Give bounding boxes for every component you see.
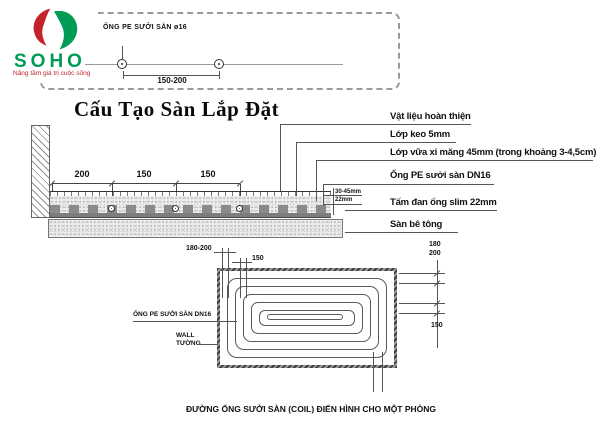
label-finish-material: Vật liệu hoàn thiện <box>390 112 471 122</box>
section-dim-150b: 150 <box>193 170 223 179</box>
room-wall-outline <box>217 268 397 368</box>
leader-line <box>345 210 497 211</box>
plan-dim-line <box>214 252 236 253</box>
coil-inner-end <box>267 314 343 320</box>
logo: SOHO Nâng tầm giá trị cuộc sống <box>10 2 98 80</box>
leader-line <box>345 232 458 233</box>
thickness-line <box>324 195 362 196</box>
plan-dim-right-150: 150 <box>431 322 443 330</box>
plan-dim-leader <box>399 273 445 274</box>
dim-end-tick <box>219 71 220 79</box>
section-dim-200: 200 <box>67 170 97 179</box>
plan-pipe-leader <box>133 321 237 322</box>
section-dim-150a: 150 <box>129 170 159 179</box>
thickness-22: 22mm <box>335 197 352 203</box>
section-pipe <box>236 205 243 212</box>
plan-dim-180-200: 180-200 <box>186 245 212 253</box>
label-pe-pipe: Ống PE sưởi sàn DN16 <box>390 171 490 181</box>
wall-section-hatch <box>31 125 50 218</box>
leader-line <box>316 160 317 201</box>
plan-dim-line <box>232 262 252 263</box>
soho-brand-text: SOHO <box>14 52 86 71</box>
plan-pipe-label: ỐNG PE SƯỞI SÀN DN16 <box>133 311 211 318</box>
panel-teeth-pattern <box>50 205 331 213</box>
leader-line <box>280 124 281 191</box>
label-panel-slim: Tấm đan ống slim 22mm <box>390 198 497 208</box>
leader-line <box>296 142 456 143</box>
coil-supply-pipe <box>373 352 374 392</box>
plan-dim-extension <box>246 258 247 298</box>
thickness-line <box>324 204 362 205</box>
dim-extension <box>52 184 53 191</box>
plan-dim-extension <box>228 248 229 298</box>
plan-dim-right-180: 180 <box>429 241 441 249</box>
pipe-panel-teeth-row <box>50 205 331 213</box>
section-pipe <box>172 205 179 212</box>
plan-dim-leader <box>399 283 445 284</box>
plan-wall-label-en: WALL <box>176 332 194 339</box>
label-cement-mortar: Lớp vữa xi măng 45mm (trong khoảng 3-4,5… <box>390 148 596 158</box>
soho-tagline: Nâng tầm giá trị cuộc sống <box>13 71 90 78</box>
page-title: Cấu Tạo Sàn Lắp Đặt <box>74 97 279 122</box>
thickness-30-45: 30-45mm <box>335 189 361 195</box>
pipe-panel-base <box>50 213 331 218</box>
plan-dim-150-top: 150 <box>252 255 264 263</box>
leader-line <box>323 184 324 206</box>
leader-line <box>323 184 494 185</box>
plan-dim-leader <box>399 303 445 304</box>
plan-wall-leader <box>200 344 218 345</box>
plan-dim-extension <box>222 248 223 298</box>
mortar-layer <box>50 196 331 205</box>
pipe-tick <box>122 46 123 59</box>
leader-line <box>296 142 297 196</box>
thickness-bracket <box>333 188 334 215</box>
section-pipe <box>108 205 115 212</box>
coil-return-pipe <box>382 352 383 392</box>
drawing-canvas: SOHO Nâng tầm giá trị cuộc sống ỐNG PE S… <box>0 0 602 424</box>
plan-dim-extension <box>240 258 241 298</box>
dim-end-tick <box>123 71 124 79</box>
soho-logo-icon <box>26 4 82 54</box>
plan-dim-leader <box>399 313 445 314</box>
top-dimension-value: 150-200 <box>140 77 204 85</box>
plan-caption: ĐƯỜNG ỐNG SƯỞI SÀN (COIL) ĐIỂN HÌNH CHO … <box>146 404 476 414</box>
leader-line <box>280 124 471 125</box>
plan-wall-label-vi: TƯỜNG <box>176 340 201 347</box>
pipe-symbol-right <box>214 59 224 69</box>
top-pipe-label: ỐNG PE SƯỞI SÀN ø16 <box>103 24 187 32</box>
concrete-slab-layer <box>48 219 343 238</box>
plan-dim-right-200: 200 <box>429 250 441 258</box>
label-glue-layer: Lớp keo 5mm <box>390 130 450 140</box>
section-dimension-line <box>52 183 240 184</box>
label-concrete-slab: Sàn bê tông <box>390 220 442 230</box>
pipe-symbol-left <box>117 59 127 69</box>
leader-line <box>316 160 593 161</box>
